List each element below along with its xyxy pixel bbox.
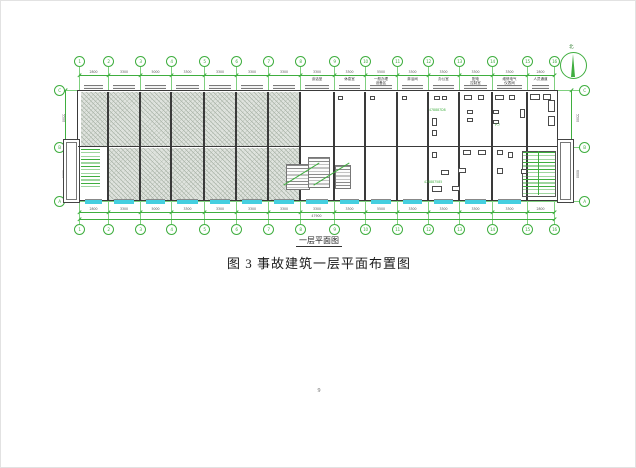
fixture — [478, 150, 486, 155]
window-top — [532, 85, 549, 89]
window-top — [370, 85, 392, 89]
fixture — [520, 109, 525, 118]
dimension-line-total — [79, 219, 554, 220]
equipment-annotation: 478887D8 — [429, 108, 446, 112]
fixture — [478, 95, 484, 100]
window-top — [433, 85, 454, 89]
equipment-annotation: 478887585 — [424, 180, 442, 184]
window-bottom — [498, 199, 521, 204]
dimension-label: 3300 — [498, 70, 522, 74]
room-label: 维修电气 仪表间 — [494, 77, 526, 85]
window-bottom — [340, 199, 359, 204]
window-top — [339, 85, 360, 89]
grid-bubble-column: 7 — [263, 224, 274, 235]
right-staircase-divider — [538, 151, 539, 195]
dimension-label: 2800 — [82, 207, 106, 211]
fixture — [434, 96, 440, 100]
grid-bubble-column: 3 — [135, 224, 146, 235]
grid-bubble-column: 11 — [392, 224, 403, 235]
window-top — [464, 85, 487, 89]
dimension-label: 2800 — [82, 70, 106, 74]
grid-bubble-column: 6 — [231, 56, 242, 67]
grid-bubble-row: C — [579, 85, 590, 96]
dimension-label: 5500 — [369, 207, 393, 211]
document-page: 北 一层平面图 图 3 事故建筑一层平面布置图 1122334455667788… — [0, 0, 636, 468]
window-bottom — [242, 199, 262, 204]
window-bottom — [85, 199, 102, 204]
fixture — [509, 95, 515, 100]
drawing-title: 一层平面图 — [1, 235, 636, 246]
grid-bubble-column: 14 — [487, 56, 498, 67]
window-top — [176, 85, 199, 89]
dimension-label: 3300 — [338, 70, 362, 74]
dimension-label: 3300 — [338, 207, 362, 211]
fixture — [338, 96, 343, 100]
dimension-label: 3300 — [464, 70, 488, 74]
fixture — [452, 186, 460, 191]
window-top — [402, 85, 423, 89]
grid-bubble-column: 11 — [392, 56, 403, 67]
room-label: 谈话室 — [301, 77, 333, 81]
fixture — [442, 96, 447, 100]
grid-bubble-column: 8 — [295, 224, 306, 235]
fixture — [463, 150, 471, 155]
window-bottom — [274, 199, 294, 204]
window-bottom — [146, 199, 165, 204]
grid-bubble-column: 5 — [199, 224, 210, 235]
window-top — [273, 85, 295, 89]
dimension-label: 3300 — [208, 70, 232, 74]
grid-bubble-column: 10 — [360, 224, 371, 235]
dimension-label: 3300 — [112, 207, 136, 211]
grid-bubble-column: 13 — [454, 224, 465, 235]
grid-bubble-column: 1 — [74, 56, 85, 67]
grid-bubble-column: 9 — [329, 224, 340, 235]
dimension-label: 5000 — [144, 70, 168, 74]
dimension-line-bottom — [79, 212, 554, 213]
room-label: 一般办理 设备区 — [365, 77, 397, 85]
grid-bubble-column: 3 — [135, 56, 146, 67]
window-bottom — [465, 199, 486, 204]
window-top — [305, 85, 329, 89]
dimension-label: 3300 — [432, 207, 456, 211]
window-top — [241, 85, 263, 89]
grid-bubble-column: 8 — [295, 56, 306, 67]
window-top — [209, 85, 231, 89]
room-label: 办公室 — [428, 77, 460, 81]
dimension-label: 3300 — [464, 207, 488, 211]
window-top — [497, 85, 522, 89]
fixture — [432, 152, 437, 158]
grid-bubble-column: 10 — [360, 56, 371, 67]
grid-bubble-column: 15 — [522, 224, 533, 235]
left-staircase — [81, 149, 100, 190]
dimension-label: 3300 — [176, 70, 200, 74]
dimension-label: 3300 — [272, 70, 296, 74]
grid-bubble-column: 1 — [74, 224, 85, 235]
grid-bubble-column: 7 — [263, 56, 274, 67]
grid-bubble-row: B — [579, 142, 590, 153]
fixture — [495, 95, 504, 100]
fixture — [548, 100, 555, 112]
grid-bubble-column: 15 — [522, 56, 533, 67]
grid-bubble-row: C — [54, 85, 65, 96]
north-label: 北 — [569, 44, 574, 50]
dimension-label-vertical: 5500 — [60, 107, 66, 131]
fixture — [402, 96, 407, 100]
grid-bubble-column: 5 — [199, 56, 210, 67]
window-top — [84, 85, 103, 89]
dimension-label: 3300 — [272, 207, 296, 211]
grid-bubble-column: 13 — [454, 56, 465, 67]
figure-caption: 图 3 事故建筑一层平面布置图 — [1, 253, 636, 272]
room-label: 淋浴间 — [397, 77, 429, 81]
grid-bubble-row: A — [579, 196, 590, 207]
dimension-label: 5000 — [144, 207, 168, 211]
fixture — [548, 116, 555, 126]
middle-staircase — [284, 151, 354, 197]
window-bottom — [403, 199, 422, 204]
dimension-label: 2800 — [529, 207, 553, 211]
grid-bubble-column: 12 — [423, 224, 434, 235]
dimension-label-vertical: 6000 — [574, 162, 580, 186]
window-bottom — [114, 199, 134, 204]
window-top — [113, 85, 135, 89]
dimension-label: 3300 — [112, 70, 136, 74]
left-stair-annex — [63, 139, 80, 203]
fixture — [370, 96, 375, 100]
fixture — [432, 130, 437, 136]
fixture — [497, 150, 503, 155]
fixture — [432, 118, 437, 126]
dimension-label: 3300 — [401, 207, 425, 211]
dimension-label: 3300 — [432, 70, 456, 74]
interior-wall-row-b — [78, 146, 557, 148]
grid-bubble-column: 2 — [103, 224, 114, 235]
fixture — [493, 110, 499, 114]
fixture — [467, 110, 473, 114]
dimension-label: 3300 — [305, 207, 329, 211]
fixture — [508, 152, 513, 158]
right-stair-annex — [557, 139, 574, 203]
room-label: 休息室 — [334, 77, 366, 81]
dimension-label: 3300 — [240, 70, 264, 74]
fixture — [441, 170, 449, 175]
grid-bubble-column: 2 — [103, 56, 114, 67]
dimension-label: 3300 — [208, 207, 232, 211]
page-number: 9 — [1, 388, 636, 394]
dimension-label-total: 47900 — [302, 214, 332, 218]
window-bottom — [434, 199, 453, 204]
grid-bubble-column: 14 — [487, 224, 498, 235]
north-arrow-needle-icon — [571, 54, 575, 77]
grid-bubble-column: 16 — [549, 224, 560, 235]
dimension-line-top — [79, 75, 554, 76]
right-staircase — [522, 151, 556, 197]
dimension-label: 5500 — [369, 70, 393, 74]
window-bottom — [210, 199, 230, 204]
window-bottom — [306, 199, 328, 204]
window-top — [145, 85, 166, 89]
grid-bubble-column: 6 — [231, 224, 242, 235]
fixture — [497, 168, 503, 174]
equipment-annotation: P-7 — [495, 123, 500, 127]
fixture — [432, 186, 442, 192]
grid-bubble-column: 4 — [166, 56, 177, 67]
room-label: 人员通道 — [525, 77, 557, 81]
dimension-label: 3300 — [498, 207, 522, 211]
window-bottom — [177, 199, 198, 204]
fixture — [530, 94, 540, 100]
grid-bubble-column: 4 — [166, 224, 177, 235]
dimension-label: 3300 — [401, 70, 425, 74]
grid-bubble-column: 12 — [423, 56, 434, 67]
window-bottom — [371, 199, 391, 204]
dimension-label: 3300 — [176, 207, 200, 211]
fixture — [521, 169, 527, 174]
dimension-label: 3300 — [240, 207, 264, 211]
floor-plan-drawing: 北 一层平面图 图 3 事故建筑一层平面布置图 1122334455667788… — [1, 1, 636, 468]
dimension-label: 2800 — [529, 70, 553, 74]
dimension-label: 3300 — [305, 70, 329, 74]
grid-bubble-column: 16 — [549, 56, 560, 67]
dimension-label-vertical: 5500 — [574, 107, 580, 131]
room-label: 配电 控制室 — [460, 77, 492, 85]
fixture — [464, 95, 472, 100]
fixture — [467, 118, 473, 122]
fixture — [458, 168, 466, 173]
grid-bubble-column: 9 — [329, 56, 340, 67]
